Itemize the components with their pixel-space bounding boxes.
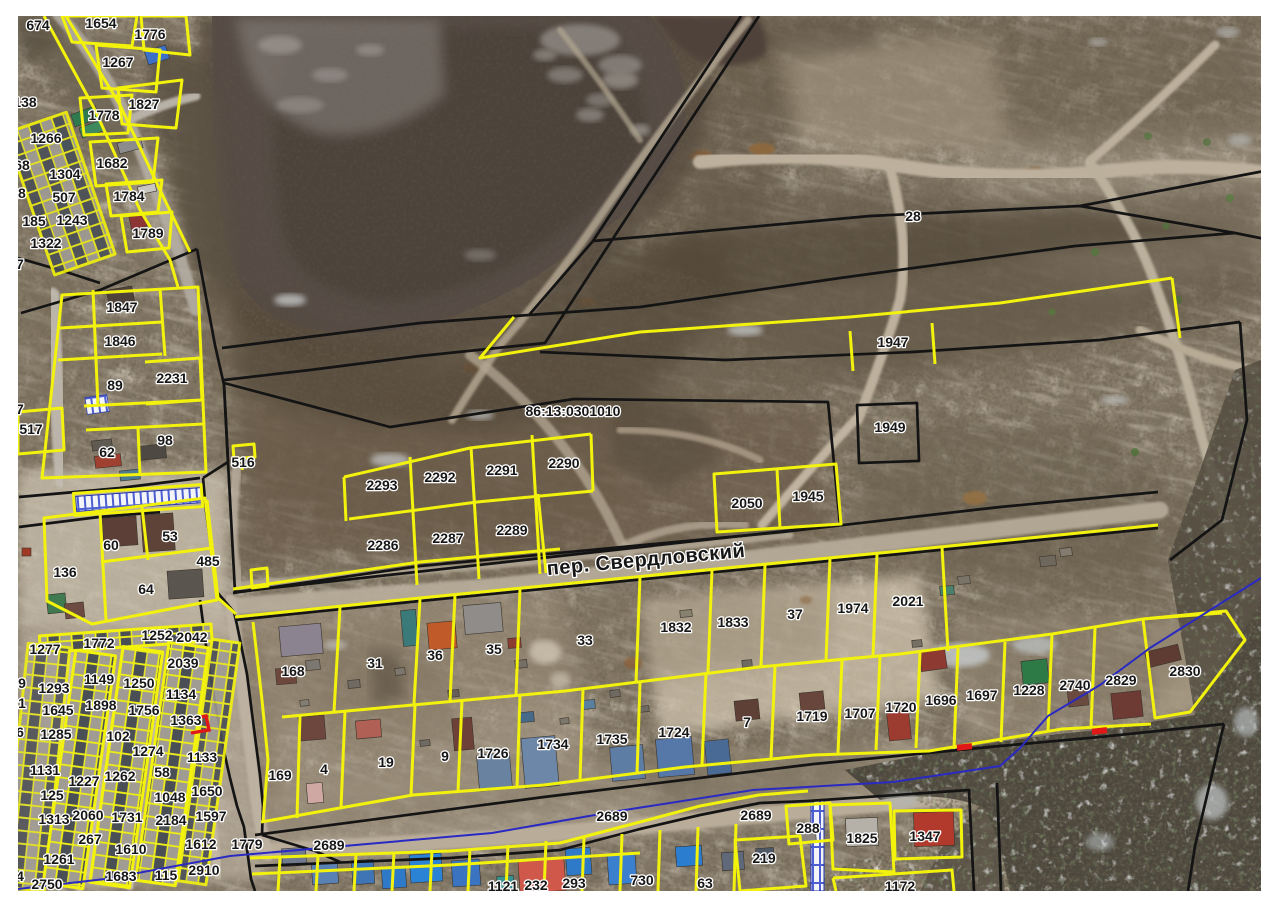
- svg-text:1696: 1696: [925, 692, 956, 708]
- svg-text:1262: 1262: [104, 768, 135, 784]
- svg-text:1707: 1707: [844, 705, 875, 721]
- svg-text:1274: 1274: [132, 743, 163, 759]
- svg-text:1261: 1261: [43, 851, 74, 867]
- svg-text:2292: 2292: [424, 469, 455, 485]
- svg-text:516: 516: [231, 454, 255, 470]
- svg-text:1719: 1719: [796, 708, 827, 724]
- svg-text:2829: 2829: [1105, 672, 1136, 688]
- svg-text:1304: 1304: [49, 166, 80, 182]
- svg-text:1833: 1833: [717, 614, 748, 630]
- svg-text:293: 293: [562, 875, 586, 891]
- svg-text:115: 115: [155, 867, 178, 883]
- svg-text:1825: 1825: [846, 830, 877, 846]
- svg-text:1720: 1720: [885, 699, 916, 715]
- svg-text:1756: 1756: [128, 702, 159, 718]
- svg-text:2689: 2689: [596, 808, 627, 824]
- svg-text:1363: 1363: [170, 712, 201, 728]
- svg-text:169: 169: [268, 767, 292, 783]
- svg-text:2039: 2039: [167, 655, 198, 671]
- svg-text:1597: 1597: [195, 808, 226, 824]
- svg-text:507: 507: [52, 189, 76, 205]
- svg-text:89: 89: [107, 377, 123, 393]
- svg-text:1827: 1827: [128, 96, 159, 112]
- svg-text:2689: 2689: [313, 837, 344, 853]
- svg-text:1149: 1149: [84, 671, 115, 687]
- svg-text:1650: 1650: [191, 783, 222, 799]
- svg-text:7: 7: [743, 714, 751, 730]
- svg-text:1277: 1277: [29, 641, 60, 657]
- svg-text:19: 19: [378, 754, 394, 770]
- svg-text:136: 136: [53, 564, 77, 580]
- svg-text:2060: 2060: [72, 807, 103, 823]
- svg-text:2286: 2286: [367, 537, 398, 553]
- svg-text:86:13:0301010: 86:13:0301010: [526, 403, 621, 419]
- svg-text:1285: 1285: [40, 726, 71, 742]
- svg-text:62: 62: [99, 444, 115, 460]
- svg-text:517: 517: [19, 421, 43, 437]
- svg-text:485: 485: [196, 553, 220, 569]
- svg-text:1726: 1726: [477, 745, 508, 761]
- svg-text:1267: 1267: [102, 54, 133, 70]
- svg-text:1898: 1898: [85, 697, 116, 713]
- svg-text:125: 125: [40, 787, 64, 803]
- svg-text:1654: 1654: [85, 15, 116, 31]
- svg-text:1947: 1947: [877, 334, 908, 350]
- svg-text:288: 288: [796, 820, 820, 836]
- svg-text:2289: 2289: [496, 522, 527, 538]
- svg-text:1974: 1974: [837, 600, 868, 616]
- svg-text:1682: 1682: [96, 155, 127, 171]
- svg-text:1131: 1131: [30, 762, 61, 778]
- svg-text:1784: 1784: [113, 188, 144, 204]
- svg-text:1832: 1832: [660, 619, 691, 635]
- svg-text:31: 31: [367, 655, 383, 671]
- svg-text:1945: 1945: [792, 488, 823, 504]
- svg-text:1734: 1734: [537, 736, 568, 752]
- svg-text:2910: 2910: [188, 862, 219, 878]
- svg-text:2740: 2740: [1059, 677, 1090, 693]
- svg-text:98: 98: [157, 432, 173, 448]
- svg-text:53: 53: [162, 528, 178, 544]
- svg-text:1779: 1779: [231, 836, 262, 852]
- svg-text:2750: 2750: [31, 876, 62, 892]
- svg-text:4: 4: [320, 761, 328, 777]
- svg-text:1227: 1227: [68, 773, 99, 789]
- svg-text:168: 168: [281, 663, 305, 679]
- svg-text:185: 185: [22, 213, 46, 229]
- svg-text:674: 674: [26, 17, 50, 33]
- svg-text:267: 267: [78, 831, 102, 847]
- svg-text:1243: 1243: [56, 212, 87, 228]
- svg-text:9: 9: [441, 748, 449, 764]
- svg-text:58: 58: [154, 764, 170, 780]
- svg-text:2689: 2689: [740, 807, 771, 823]
- svg-text:1846: 1846: [104, 333, 135, 349]
- svg-text:2287: 2287: [432, 530, 463, 546]
- svg-text:2050: 2050: [731, 495, 762, 511]
- svg-text:1134: 1134: [166, 686, 197, 702]
- svg-text:1847: 1847: [106, 299, 137, 315]
- svg-text:2291: 2291: [486, 462, 517, 478]
- svg-text:102: 102: [106, 728, 130, 744]
- svg-text:219: 219: [752, 850, 776, 866]
- svg-text:28: 28: [905, 208, 921, 224]
- svg-text:2290: 2290: [548, 455, 579, 471]
- svg-text:1133: 1133: [187, 749, 218, 765]
- svg-text:1789: 1789: [132, 225, 163, 241]
- svg-text:1293: 1293: [38, 680, 69, 696]
- svg-text:1347: 1347: [909, 828, 940, 844]
- svg-text:730: 730: [630, 872, 654, 888]
- svg-text:37: 37: [787, 606, 803, 622]
- svg-text:1266: 1266: [30, 130, 61, 146]
- svg-text:9: 9: [18, 675, 26, 691]
- svg-text:2021: 2021: [892, 593, 923, 609]
- svg-text:1697: 1697: [966, 687, 997, 703]
- svg-text:1252: 1252: [141, 627, 172, 643]
- svg-text:60: 60: [103, 537, 119, 553]
- svg-text:63: 63: [697, 875, 713, 891]
- svg-text:2830: 2830: [1169, 663, 1200, 679]
- svg-text:1735: 1735: [596, 731, 627, 747]
- svg-text:1645: 1645: [42, 702, 73, 718]
- svg-text:1: 1: [18, 695, 26, 711]
- svg-text:1724: 1724: [658, 724, 689, 740]
- svg-text:1776: 1776: [134, 26, 165, 42]
- svg-text:1250: 1250: [123, 675, 154, 691]
- svg-text:1949: 1949: [874, 419, 905, 435]
- svg-text:1612: 1612: [185, 836, 216, 852]
- svg-text:1778: 1778: [88, 107, 119, 123]
- svg-text:232: 232: [524, 877, 548, 893]
- svg-text:1048: 1048: [154, 789, 185, 805]
- svg-text:36: 36: [427, 647, 443, 663]
- svg-text:1610: 1610: [115, 841, 146, 857]
- svg-text:2231: 2231: [156, 370, 187, 386]
- svg-text:1322: 1322: [30, 235, 61, 251]
- svg-text:1772: 1772: [83, 635, 114, 651]
- svg-text:33: 33: [577, 632, 593, 648]
- svg-text:1228: 1228: [1013, 682, 1044, 698]
- svg-text:2293: 2293: [366, 477, 397, 493]
- svg-text:64: 64: [138, 581, 154, 597]
- svg-text:2184: 2184: [155, 812, 186, 828]
- svg-text:2042: 2042: [176, 629, 207, 645]
- svg-text:1683: 1683: [105, 868, 136, 884]
- svg-text:35: 35: [486, 641, 502, 657]
- svg-text:1731: 1731: [111, 809, 142, 825]
- svg-text:1313: 1313: [38, 811, 69, 827]
